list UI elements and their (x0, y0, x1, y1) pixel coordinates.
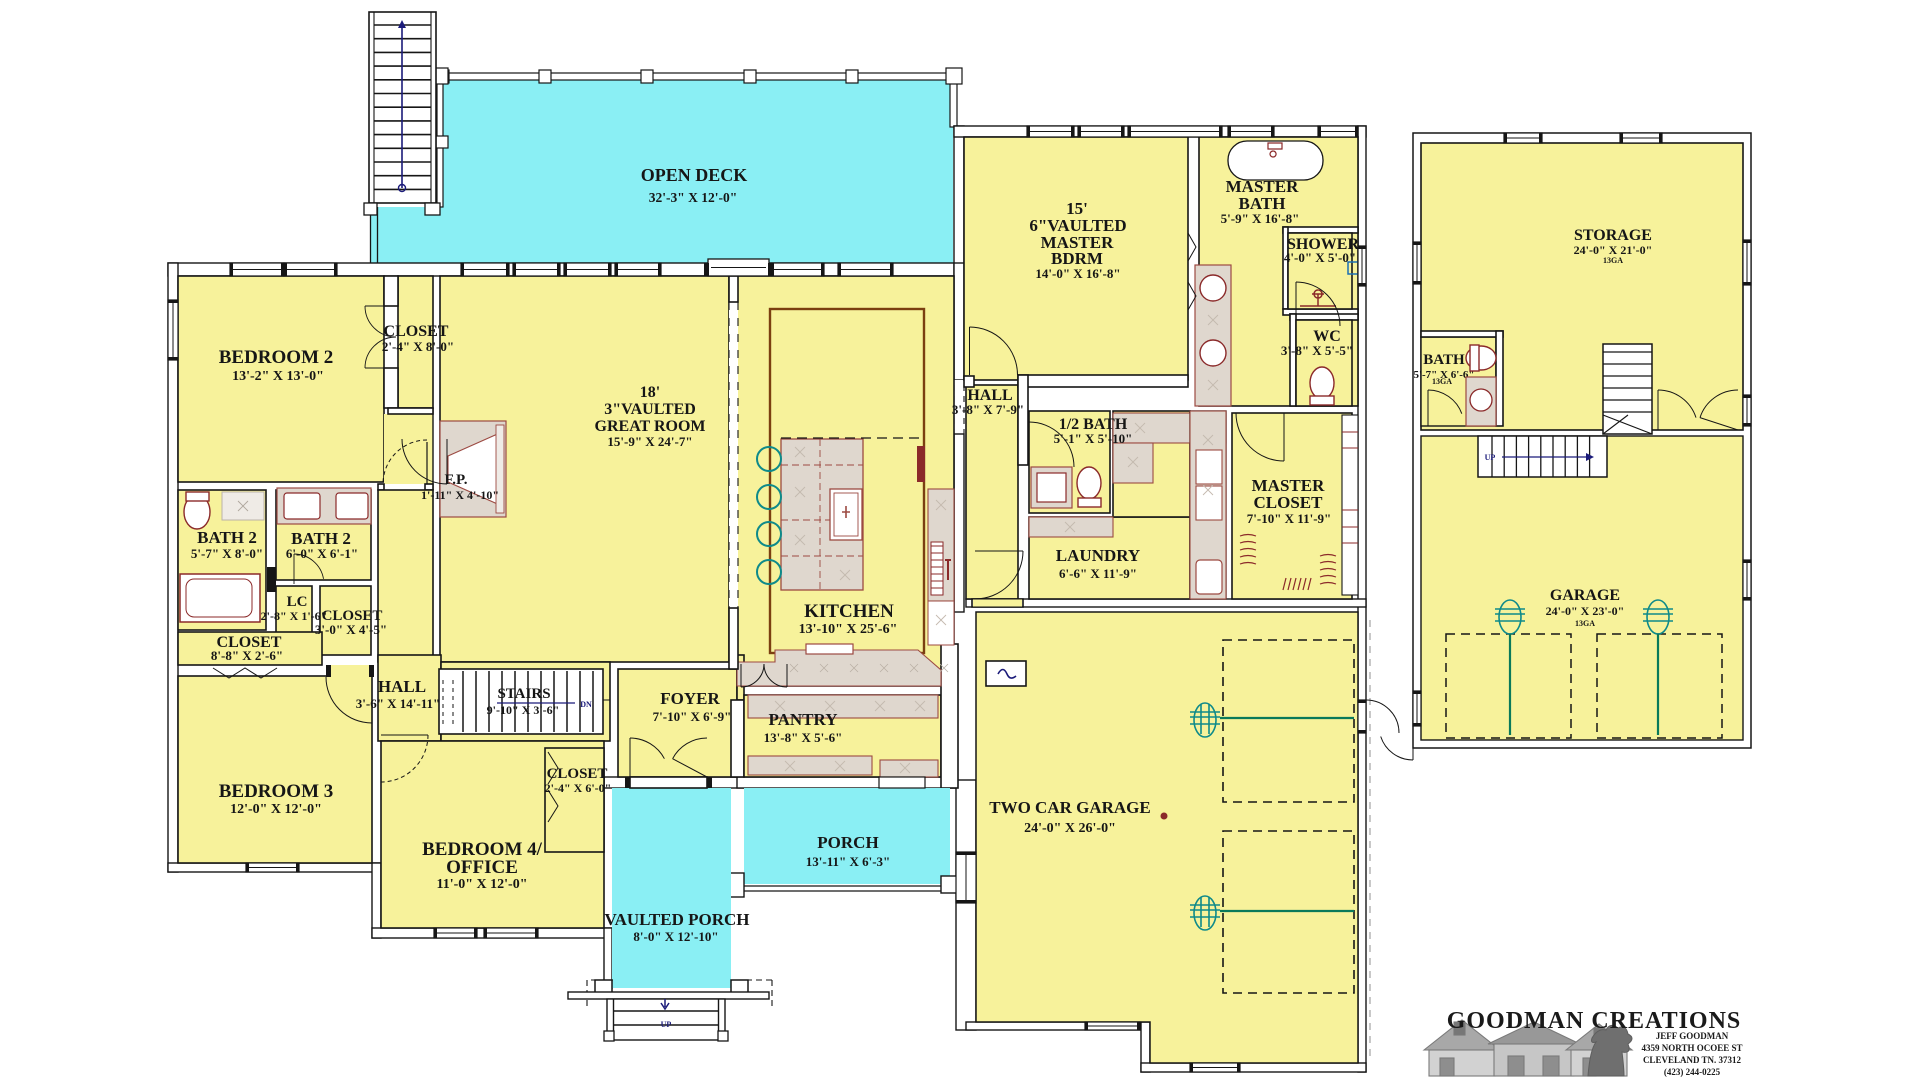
svg-text:BEDROOM 3: BEDROOM 3 (219, 781, 334, 802)
svg-text:3'-8" X 7'-9": 3'-8" X 7'-9" (952, 402, 1024, 417)
svg-text:6'-0" X 6'-1": 6'-0" X 6'-1" (286, 546, 358, 561)
svg-text:3'-0" X 4'-5": 3'-0" X 4'-5" (315, 622, 387, 637)
svg-text:5'-9" X 16'-8": 5'-9" X 16'-8" (1221, 211, 1300, 226)
svg-text:PANTRY: PANTRY (769, 710, 838, 729)
svg-text:F.P.: F.P. (444, 472, 467, 488)
svg-text:1'-11" X 4'-10": 1'-11" X 4'-10" (421, 488, 499, 502)
svg-text:CLOSET: CLOSET (547, 766, 608, 782)
svg-text:UP: UP (1485, 453, 1496, 462)
svg-text:JEFF GOODMAN: JEFF GOODMAN (1656, 1031, 1729, 1041)
svg-text:5'-1" X 5'-10": 5'-1" X 5'-10" (1054, 431, 1133, 446)
svg-text:TWO CAR GARAGE: TWO CAR GARAGE (989, 798, 1151, 817)
svg-text:CLOSET: CLOSET (1254, 493, 1324, 512)
svg-text:OPEN DECK: OPEN DECK (641, 165, 748, 185)
svg-text:3'-6" X 14'-11": 3'-6" X 14'-11" (356, 696, 441, 711)
svg-text:2'-8" X 1'-6": 2'-8" X 1'-6" (261, 609, 328, 623)
svg-text:7'-10" X 11'-9": 7'-10" X 11'-9" (1247, 511, 1332, 526)
svg-text:8'-0" X 12'-10": 8'-0" X 12'-10" (633, 929, 718, 944)
svg-text:13GA: 13GA (1575, 619, 1595, 628)
svg-text:LAUNDRY: LAUNDRY (1056, 546, 1140, 565)
svg-text:7'-10" X 6'-9": 7'-10" X 6'-9" (653, 709, 732, 724)
svg-text:5'-7" X 8'-0": 5'-7" X 8'-0" (191, 546, 263, 561)
svg-text:VAULTED PORCH: VAULTED PORCH (604, 910, 749, 929)
svg-text:UP: UP (661, 1020, 672, 1029)
svg-text:BATH: BATH (1423, 352, 1465, 368)
svg-text:24'-0" X 23'-0": 24'-0" X 23'-0" (1546, 604, 1625, 618)
svg-text:(423) 244-0225: (423) 244-0225 (1664, 1067, 1721, 1077)
svg-text:4'-0" X 5'-0": 4'-0" X 5'-0" (1284, 250, 1356, 265)
svg-text:13'-2" X 13'-0": 13'-2" X 13'-0" (232, 369, 324, 384)
svg-text:11'-0" X 12'-0": 11'-0" X 12'-0" (437, 877, 528, 892)
svg-text:18': 18' (640, 384, 660, 401)
svg-text:8'-8" X 2'-6": 8'-8" X 2'-6" (211, 648, 283, 663)
svg-text:3'-8" X 5'-5": 3'-8" X 5'-5" (1281, 343, 1353, 358)
svg-text:PORCH: PORCH (817, 833, 878, 852)
svg-text:14'-0" X 16'-8": 14'-0" X 16'-8" (1035, 266, 1120, 281)
svg-text:13'-11" X 6'-3": 13'-11" X 6'-3" (806, 854, 891, 869)
svg-text:DN: DN (580, 700, 592, 709)
svg-text:CLEVELAND TN. 37312: CLEVELAND TN. 37312 (1643, 1055, 1742, 1065)
svg-text:2'-4" X 6'-0": 2'-4" X 6'-0" (545, 781, 612, 795)
svg-text:4359 NORTH OCOEE ST: 4359 NORTH OCOEE ST (1642, 1043, 1743, 1053)
svg-text:GARAGE: GARAGE (1550, 587, 1620, 604)
svg-text:OFFICE: OFFICE (446, 857, 518, 878)
svg-text:BEDROOM 2: BEDROOM 2 (219, 347, 334, 368)
svg-text:3"VAULTED: 3"VAULTED (604, 401, 696, 418)
svg-text:STAIRS: STAIRS (497, 686, 550, 702)
svg-text:13'-8" X 5'-6": 13'-8" X 5'-6" (764, 730, 843, 745)
svg-text:CLOSET: CLOSET (384, 323, 449, 340)
svg-text:BATH 2: BATH 2 (197, 528, 257, 547)
svg-text:HALL: HALL (378, 677, 426, 696)
svg-text:13GA: 13GA (1603, 256, 1623, 265)
svg-text:LC: LC (287, 594, 308, 610)
svg-text:12'-0" X 12'-0": 12'-0" X 12'-0" (230, 802, 322, 817)
svg-text:STORAGE: STORAGE (1574, 227, 1652, 244)
svg-text:KITCHEN: KITCHEN (804, 601, 894, 622)
svg-text:24'-0" X 26'-0": 24'-0" X 26'-0" (1024, 821, 1116, 836)
svg-text:24'-0" X 21'-0": 24'-0" X 21'-0" (1574, 243, 1653, 257)
svg-text:13GA: 13GA (1432, 377, 1452, 386)
svg-text:15'-9" X 24'-7": 15'-9" X 24'-7" (607, 434, 692, 449)
svg-text:9'-10" X 3'-6": 9'-10" X 3'-6" (487, 703, 560, 717)
svg-text:6'-6" X 11'-9": 6'-6" X 11'-9" (1059, 566, 1137, 581)
svg-text:2'-4" X 8'-0": 2'-4" X 8'-0" (382, 339, 454, 354)
svg-text:GREAT ROOM: GREAT ROOM (595, 418, 706, 435)
svg-text:FOYER: FOYER (660, 689, 720, 708)
svg-text:32'-3" X 12'-0": 32'-3" X 12'-0" (649, 190, 737, 205)
svg-text:13'-10" X 25'-6": 13'-10" X 25'-6" (799, 622, 898, 637)
